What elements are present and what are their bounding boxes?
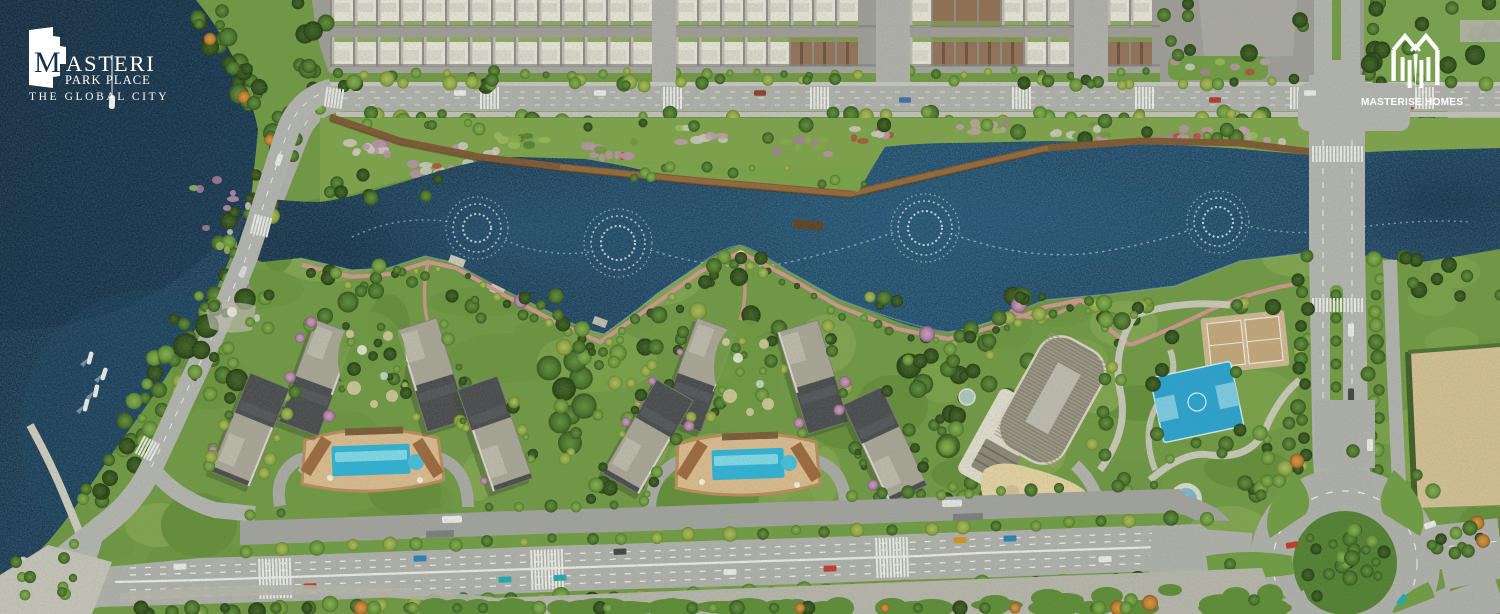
svg-text:THE GLOBAL CITY: THE GLOBAL CITY xyxy=(29,91,169,103)
svg-text:PARK PLACE: PARK PLACE xyxy=(65,73,151,87)
svg-text:M: M xyxy=(34,46,61,79)
svg-text:MASTERISE HOMES: MASTERISE HOMES xyxy=(1361,97,1463,108)
